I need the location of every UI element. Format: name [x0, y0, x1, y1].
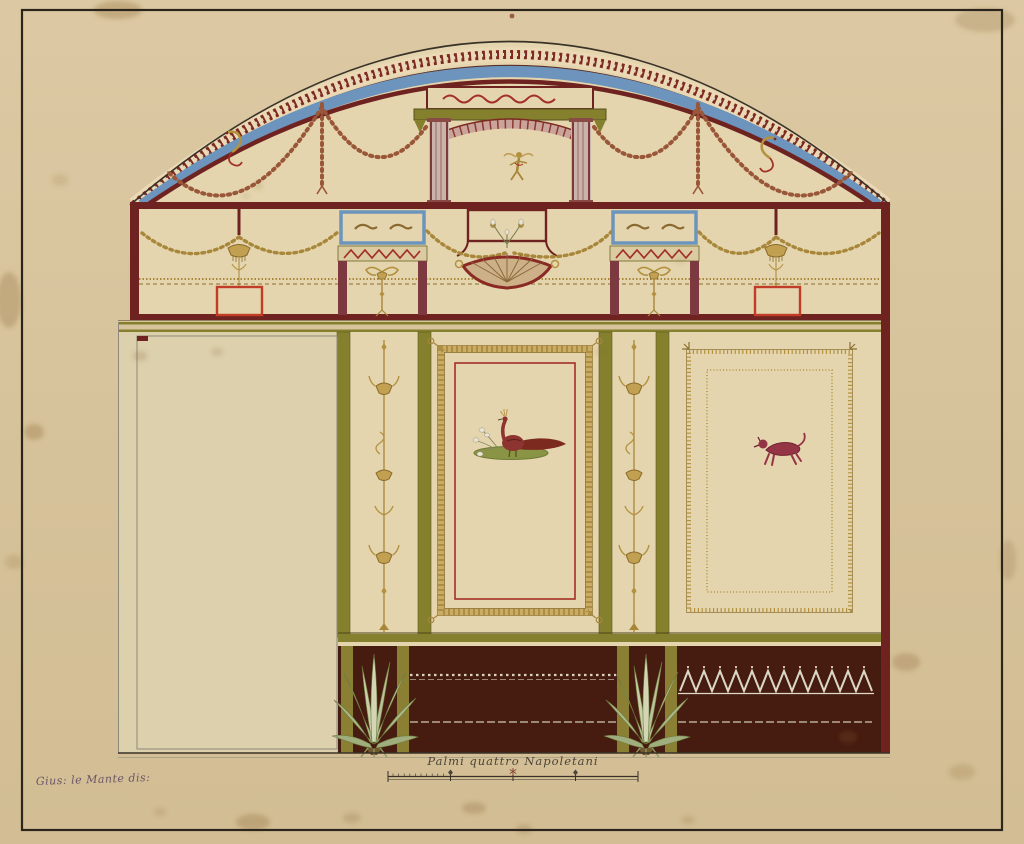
olive-band-b [418, 332, 431, 637]
aedicula-attic-panel [427, 87, 593, 109]
frieze-left-post [130, 202, 139, 320]
olive-band-c [599, 332, 612, 637]
right-border-post [881, 202, 890, 753]
dado-top-band [338, 634, 881, 642]
left-blank-field [118, 332, 337, 753]
scale-caption: Palmi quattro Napoletani [426, 754, 598, 768]
olive-band-a [337, 332, 350, 637]
red-ink-speck [510, 14, 515, 19]
frieze-top-band [130, 202, 890, 209]
wall-elevation-drawing: Palmi quattro Napoletani Gius: le Mante … [0, 0, 1024, 844]
aedicula-column-left [427, 118, 451, 205]
aedicula-column-right [569, 118, 593, 205]
olive-band-d [656, 332, 669, 637]
artwork-scan: Palmi quattro Napoletani Gius: le Mante … [0, 0, 1024, 844]
mural-drawing [118, 42, 890, 758]
dado [332, 633, 881, 757]
